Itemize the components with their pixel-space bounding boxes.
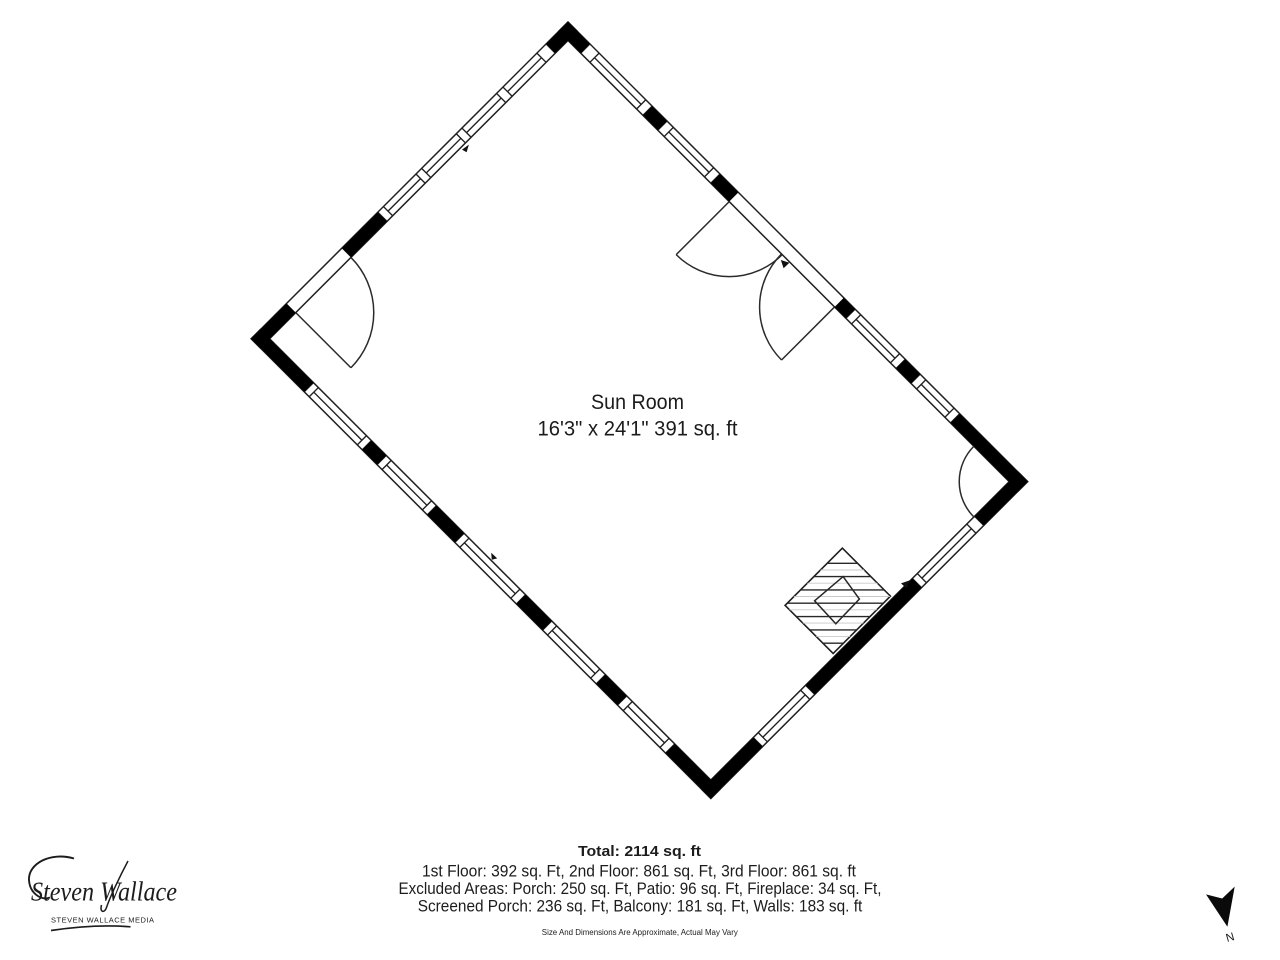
svg-text:Total: 2114 sq. ft: Total: 2114 sq. ft [578, 844, 701, 860]
svg-text:STEVEN WALLACE MEDIA: STEVEN WALLACE MEDIA [51, 915, 154, 924]
svg-text:1st Floor: 392 sq. Ft, 2nd Flo: 1st Floor: 392 sq. Ft, 2nd Floor: 861 sq… [422, 862, 856, 880]
svg-text:Screened Porch: 236 sq. Ft, Ba: Screened Porch: 236 sq. Ft, Balcony: 181… [418, 898, 863, 916]
svg-text:16'3" x 24'1" 391 sq. ft: 16'3" x 24'1" 391 sq. ft [538, 418, 738, 441]
svg-text:Size And Dimensions Are Approx: Size And Dimensions Are Approximate, Act… [542, 928, 738, 937]
svg-text:Sun Room: Sun Room [591, 391, 684, 414]
svg-text:Excluded Areas: Porch: 250 sq.: Excluded Areas: Porch: 250 sq. Ft, Patio… [399, 880, 882, 898]
svg-text:Steven Wallace: Steven Wallace [31, 876, 177, 907]
